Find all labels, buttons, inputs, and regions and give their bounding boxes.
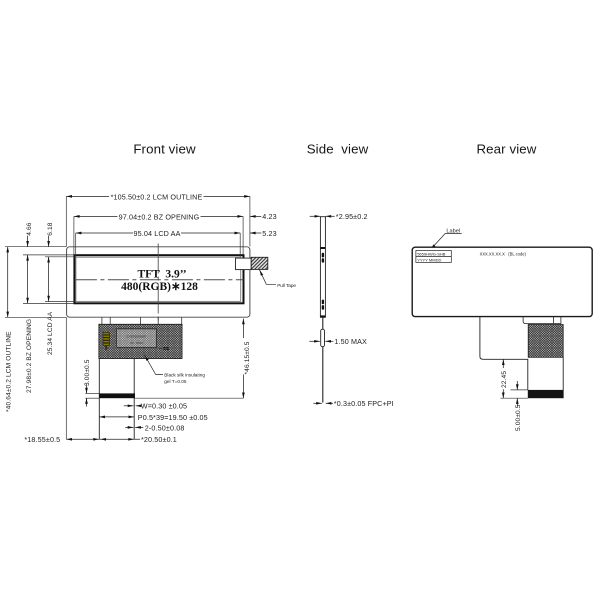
svg-text:*105.50±0.2 LCM OUTLINE: *105.50±0.2 LCM OUTLINE: [111, 192, 203, 201]
svg-text:480(RGB)∗128: 480(RGB)∗128: [121, 281, 198, 293]
svg-text:Side view: Side view: [307, 142, 369, 157]
svg-text:Rear view: Rear view: [476, 142, 536, 157]
svg-text:27.98±0.2 BZ OPENING: 27.98±0.2 BZ OPENING: [26, 319, 33, 393]
svg-text:*20.50±0.1: *20.50±0.1: [141, 435, 177, 444]
svg-text:*40.64±0.2 LCM OUTLINE: *40.64±0.2 LCM OUTLINE: [6, 331, 13, 412]
svg-text:4.66: 4.66: [26, 222, 33, 236]
svg-text:YYYY MMDD: YYYY MMDD: [417, 257, 441, 262]
svg-text:25.34 LCD AA: 25.34 LCD AA: [47, 311, 54, 355]
svg-text:1.50 MAX: 1.50 MAX: [334, 337, 367, 346]
svg-text:95.04 LCD AA: 95.04 LCD AA: [134, 229, 181, 238]
svg-text:Pull Tape: Pull Tape: [277, 283, 296, 288]
svg-text:Component: Component: [127, 334, 148, 338]
svg-text:W=0.30 ±0.05: W=0.30 ±0.05: [141, 402, 187, 411]
svg-text:P0.5*39=19.50 ±0.05: P0.5*39=19.50 ±0.05: [138, 413, 208, 422]
svg-text:Black silk insulating: Black silk insulating: [164, 372, 205, 377]
svg-text:*46.15±0.5: *46.15±0.5: [244, 341, 251, 374]
svg-text:3.00±0.5: 3.00±0.5: [84, 359, 91, 386]
svg-text:*18.55±0.5: *18.55±0.5: [24, 435, 60, 444]
svg-text:97.04±0.2 BZ OPENING: 97.04±0.2 BZ OPENING: [119, 212, 200, 221]
svg-text:on rear: on rear: [130, 341, 144, 345]
svg-text:XXX.XX.XX.X (BL code): XXX.XX.XX.X (BL code): [480, 252, 527, 257]
svg-text:4.23: 4.23: [262, 212, 276, 221]
svg-text:gel T=0.05: gel T=0.05: [164, 379, 187, 384]
svg-text:22.45: 22.45: [501, 371, 508, 388]
svg-text:Front view: Front view: [133, 142, 196, 157]
svg-text:*0.3±0.05 FPC+PI: *0.3±0.05 FPC+PI: [334, 399, 394, 408]
svg-text:6.18: 6.18: [47, 222, 54, 236]
svg-text:5659HWG-SHB: 5659HWG-SHB: [417, 251, 446, 256]
svg-text:5.23: 5.23: [262, 229, 276, 238]
svg-text:*2.95±0.2: *2.95±0.2: [336, 212, 368, 221]
svg-text:2-0.50±0.08: 2-0.50±0.08: [145, 423, 185, 432]
svg-text:5.00±0.5: 5.00±0.5: [515, 404, 522, 431]
svg-text:TFT 3.9’’: TFT 3.9’’: [137, 268, 186, 280]
